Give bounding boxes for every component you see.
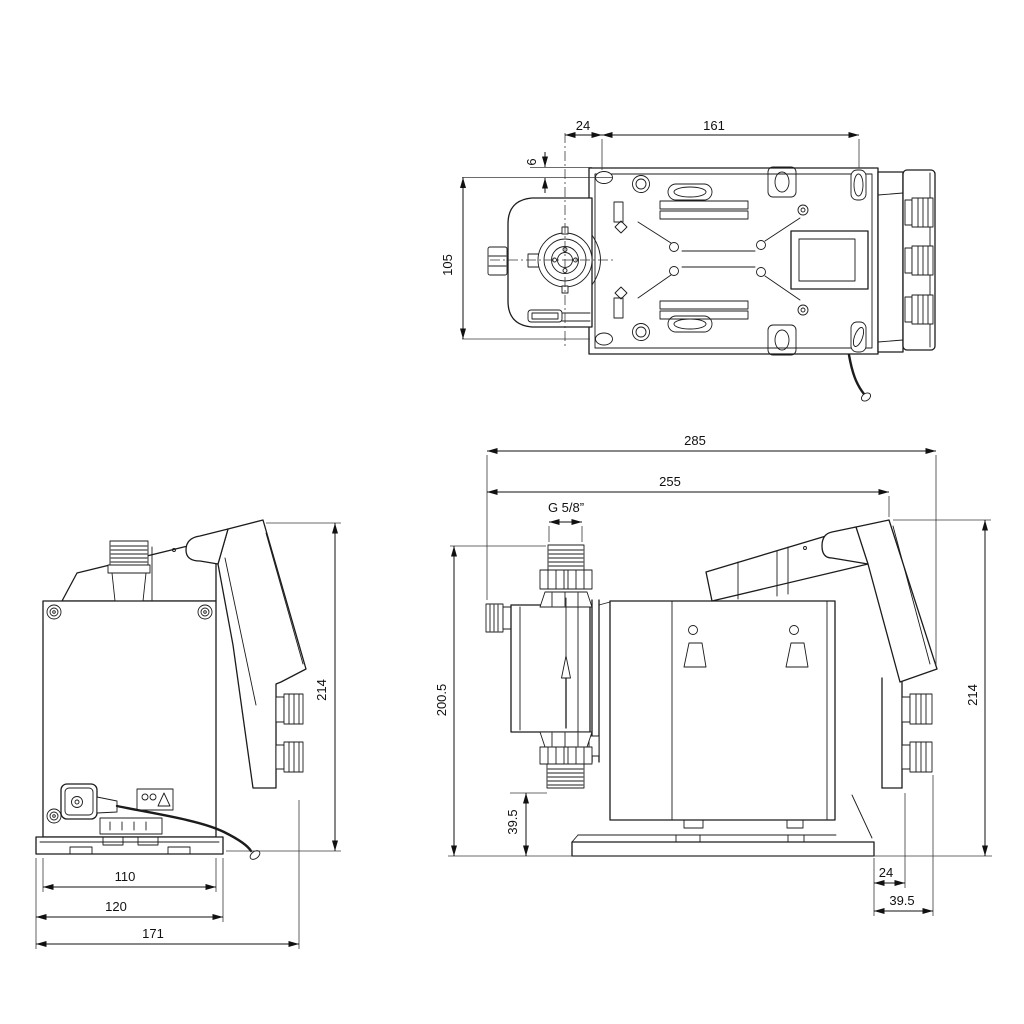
dim-label-24-side: 24 bbox=[879, 865, 893, 880]
front-view: 110 120 171 214 bbox=[36, 520, 341, 949]
dim-label-39-5-bottom: 39.5 bbox=[889, 893, 914, 908]
dim-label-110: 110 bbox=[115, 869, 136, 884]
bottom-thread bbox=[547, 764, 584, 788]
side-view: 285 255 G 5/8” 200.5 39.5 214 24 39.5 bbox=[434, 433, 992, 916]
dim-label-214-side: 214 bbox=[965, 684, 980, 706]
dim-label-24-top: 24 bbox=[576, 118, 590, 133]
dim-label-214-front: 214 bbox=[314, 679, 329, 701]
side-view-outline bbox=[486, 520, 937, 856]
dim-label-thread: G 5/8” bbox=[548, 500, 584, 515]
top-port-thread-front bbox=[110, 541, 148, 565]
gland-knobs-side bbox=[902, 694, 932, 772]
top-view-outline bbox=[488, 167, 935, 403]
panel-strip-top bbox=[878, 172, 903, 352]
pump-dimensional-drawing: 24 161 6 105 bbox=[0, 0, 1024, 1024]
dim-label-285: 285 bbox=[684, 433, 706, 448]
front-view-outline bbox=[36, 520, 306, 861]
vent-knob-top bbox=[488, 247, 507, 275]
mounting-plate bbox=[589, 168, 878, 354]
dim-label-6: 6 bbox=[524, 158, 539, 165]
power-cable-top bbox=[849, 355, 864, 394]
base-plate-side bbox=[572, 842, 874, 856]
base-plate-front bbox=[36, 837, 223, 854]
dim-label-200-5: 200.5 bbox=[434, 684, 449, 717]
dim-label-39-5-side: 39.5 bbox=[505, 809, 520, 834]
pump-body-side bbox=[610, 601, 835, 820]
dim-label-171: 171 bbox=[142, 926, 164, 941]
dosing-head-side bbox=[486, 545, 592, 788]
gland-knobs-front bbox=[276, 694, 303, 772]
dim-label-161: 161 bbox=[703, 118, 725, 133]
vent-knob-side bbox=[486, 604, 503, 632]
cable-gland-knobs-top bbox=[905, 198, 933, 324]
top-view: 24 161 6 105 bbox=[440, 118, 935, 403]
dim-label-120: 120 bbox=[105, 899, 127, 914]
terminal-strip-front bbox=[100, 818, 162, 834]
dim-label-255: 255 bbox=[659, 474, 681, 489]
technical-drawing-canvas: 24 161 6 105 bbox=[0, 0, 1024, 1024]
dim-label-105: 105 bbox=[440, 254, 455, 276]
clamp-top bbox=[528, 310, 562, 322]
